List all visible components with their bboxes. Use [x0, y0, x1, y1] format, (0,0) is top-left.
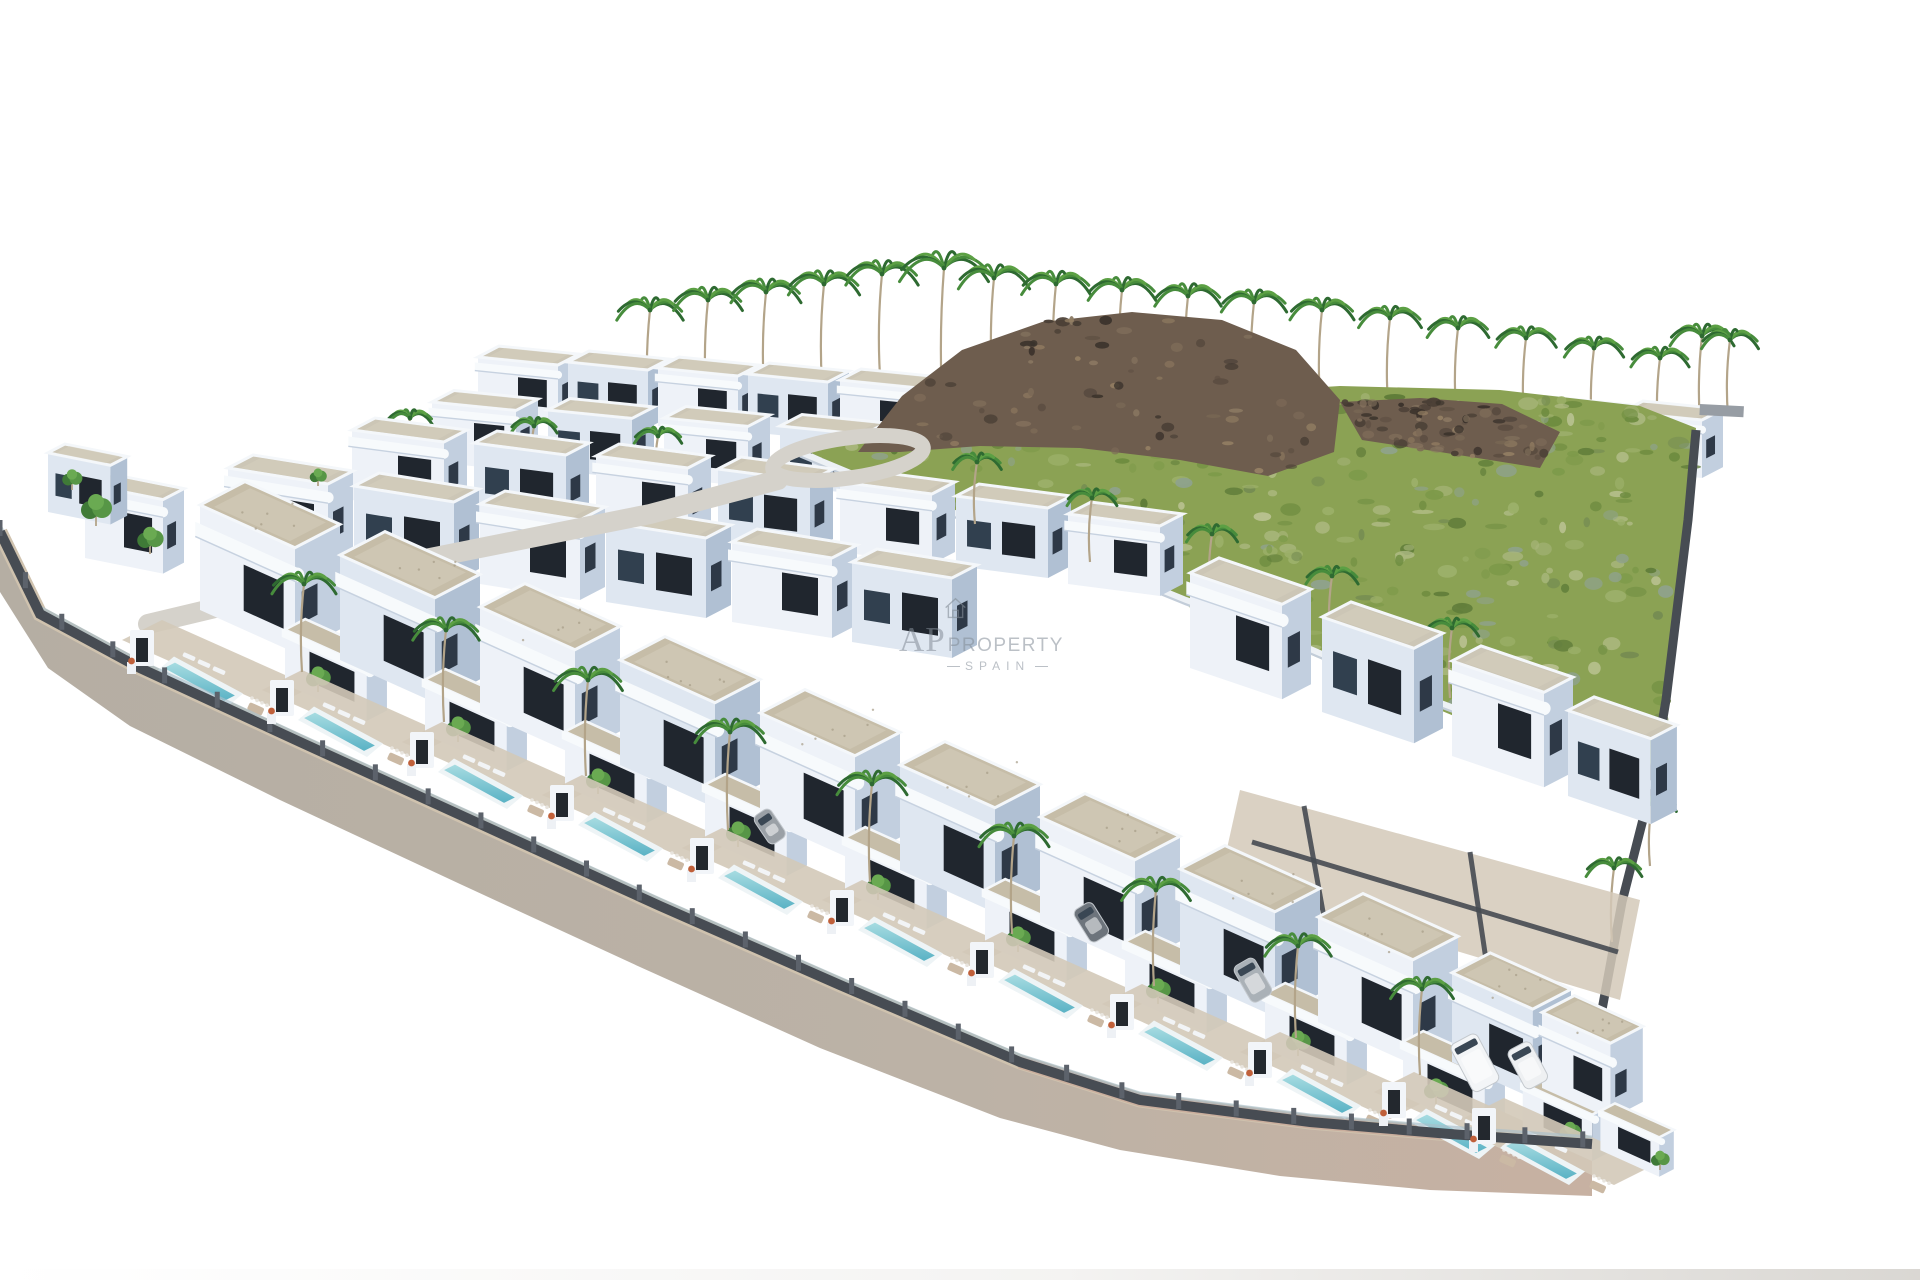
roof-gravel-dot [1106, 827, 1108, 829]
roof-gravel-dot [1491, 997, 1493, 999]
villa-window [656, 552, 692, 595]
planter-flowers [548, 813, 555, 820]
roof-gravel-dot [1515, 974, 1517, 976]
dining-chair [825, 911, 829, 915]
roof-gravel-dot [1241, 880, 1243, 882]
dining-chair [960, 961, 964, 965]
balcony-band-end [322, 492, 333, 503]
palm-crown-center [1012, 834, 1017, 839]
roof-gravel-dot [986, 772, 988, 774]
dining-chair [1592, 1174, 1596, 1178]
entrance-portico [967, 942, 994, 986]
roof-gravel-dot [454, 561, 456, 563]
wall-pillar [1580, 1131, 1585, 1147]
balcony-band-end [439, 449, 449, 459]
palm-trunk [1727, 340, 1730, 416]
palm-crown-center [764, 290, 769, 295]
roof-gravel-dot [433, 561, 435, 563]
planter-flowers [128, 658, 135, 665]
dining-chair [955, 959, 959, 963]
planter-flowers [408, 760, 415, 767]
entrance-portico [1379, 1082, 1406, 1126]
palm-crown-center [1420, 987, 1425, 992]
roof-gravel-dot [1381, 933, 1383, 935]
wall-pillar [215, 692, 220, 708]
portico-doorway [976, 950, 988, 974]
palm-crown-center [444, 628, 449, 633]
dining-chair [1095, 1011, 1099, 1015]
roof-gravel-dot [723, 681, 725, 683]
roof-gravel-dot [843, 735, 845, 737]
wall-pillar [531, 836, 536, 852]
roof-gravel-dot [997, 795, 999, 797]
planter-flowers [968, 970, 975, 977]
roof-gravel-dot [399, 567, 401, 569]
balcony-band-end [927, 501, 937, 511]
roof-gravel-dot [453, 564, 455, 566]
roof-gravel-dot [1156, 831, 1158, 833]
roof-gravel-dot [1121, 828, 1123, 830]
tree-foliage [1655, 1151, 1665, 1161]
roof-gravel-dot [1247, 893, 1249, 895]
wall-pillar [320, 740, 325, 756]
roof-gravel-dot [1118, 840, 1120, 842]
dining-chair [390, 746, 394, 750]
corner-pier [1699, 404, 1744, 417]
villa-wing-parapet-end [1591, 1115, 1599, 1123]
roof-gravel-dot [1576, 1032, 1578, 1034]
roof-gravel-dot [255, 527, 257, 529]
wall-pillar [1234, 1100, 1239, 1116]
roof-gravel-dot [866, 724, 868, 726]
roof-gravel-dot [1368, 917, 1370, 919]
roof-gravel-dot [1127, 814, 1129, 816]
palm-crown-center [942, 266, 947, 271]
balcony-band-end [554, 371, 562, 379]
roof-gravel-dot [562, 626, 564, 628]
villa-side-window [1288, 631, 1300, 668]
dining-chair [965, 963, 969, 967]
roof-gravel-dot [438, 577, 440, 579]
dining-chair [395, 749, 399, 753]
wall-pillar [23, 572, 28, 588]
entrance-portico [407, 732, 434, 776]
palm-crown-center [1054, 282, 1059, 287]
dining-chair [680, 856, 684, 860]
portico-doorway [1478, 1116, 1490, 1140]
render-canvas: AP PROPERTY SPAIN [0, 0, 1920, 1280]
wall-pillar [373, 764, 378, 780]
villa-window [886, 508, 919, 545]
balcony-band-end [826, 566, 837, 577]
palm-tree [846, 261, 918, 376]
dining-chair [1100, 1013, 1104, 1017]
roof-gravel-dot [557, 629, 559, 631]
planter-flowers [1108, 1022, 1115, 1029]
palm-frond [900, 259, 944, 281]
dining-chair [530, 798, 534, 802]
roof-gravel-dot [689, 684, 691, 686]
tree-foliage [88, 494, 104, 510]
wall-pillar [584, 861, 589, 877]
villa-window [618, 550, 644, 585]
roof-gravel-dot [522, 639, 524, 641]
palm-crown-center [1728, 338, 1733, 343]
palm-crown-center [1388, 316, 1393, 321]
dining-chair [820, 909, 824, 913]
villa-side-window [1420, 675, 1432, 712]
palm-crown-center [648, 308, 653, 313]
portico-doorway [556, 793, 568, 817]
entrance-portico [547, 785, 574, 829]
entrance-portico [827, 890, 854, 934]
palm-crown-center [656, 434, 661, 439]
dining-chair [950, 956, 954, 960]
villa [852, 549, 977, 658]
dining-chair [545, 805, 549, 809]
roof-gravel-dot [1421, 930, 1423, 932]
dining-chair [1373, 1111, 1377, 1115]
palm-crown-center [1120, 288, 1125, 293]
dining-chair [1607, 1181, 1611, 1185]
portico-doorway [1254, 1050, 1266, 1074]
dining-chair [1230, 1060, 1234, 1064]
villa-window [864, 590, 890, 625]
wall-pillar [956, 1024, 961, 1040]
palm-crown-center [880, 272, 885, 277]
dining-chair [1602, 1179, 1606, 1183]
roof-gravel-dot [1232, 897, 1234, 899]
dining-chair [815, 907, 819, 911]
dining-chair [675, 854, 679, 858]
roof-gravel-dot [946, 786, 948, 788]
roof-gravel-dot [814, 737, 816, 739]
wall-pillar [162, 667, 167, 683]
roof-gravel-dot [719, 678, 721, 680]
palm-crown-center [822, 282, 827, 287]
roof-gravel-dot [1498, 985, 1500, 987]
villa-side-window [1656, 763, 1667, 796]
tree-foliage [732, 821, 745, 834]
palm-crown-center [1296, 944, 1301, 949]
roof-gravel-dot [293, 525, 295, 527]
entrance-portico [687, 838, 714, 882]
villa [728, 529, 857, 638]
dining-chair [1597, 1177, 1601, 1181]
balcony-band-end [734, 382, 742, 390]
villa-window [1114, 540, 1147, 577]
wall-pillar [478, 812, 483, 828]
villa-side-window [1550, 719, 1562, 756]
portico-doorway [416, 740, 428, 764]
dining-chair [685, 858, 689, 862]
balcony-band-end [1155, 533, 1165, 543]
palm-crown-center [1658, 356, 1663, 361]
wall-pillar [1349, 1114, 1354, 1130]
roof-gravel-dot [1602, 1029, 1604, 1031]
palm-tree [1702, 330, 1759, 416]
palm-crown-center [1090, 496, 1095, 501]
wall-pillar [849, 978, 854, 994]
wall-pillar [1407, 1119, 1412, 1135]
villa-side-window [167, 521, 176, 549]
dining-chair [670, 851, 674, 855]
roof-gravel-dot [1292, 873, 1294, 875]
dining-chair [1368, 1108, 1372, 1112]
palm-crown-center [870, 782, 875, 787]
roof-gravel-dot [1388, 951, 1390, 953]
roof-gravel-dot [241, 511, 243, 513]
roof-gravel-dot [1524, 988, 1526, 990]
wall-pillar [59, 614, 64, 630]
palm-crown-center [706, 298, 711, 303]
palm-trunk [879, 274, 882, 376]
palm-crown-center [1592, 346, 1597, 351]
dining-chair [1240, 1065, 1244, 1069]
dining-chair [540, 803, 544, 807]
wall-pillar [690, 908, 695, 924]
villa-window [764, 495, 797, 532]
palm-crown-center [1154, 888, 1159, 893]
portico-doorway [136, 638, 148, 662]
dining-chair [255, 699, 259, 703]
villa-side-window [957, 600, 968, 631]
wall-pillar [902, 1001, 907, 1017]
villa-window [967, 520, 991, 550]
roof-gravel-dot [589, 628, 591, 630]
portico-doorway [696, 846, 708, 870]
palm-crown-center [1186, 294, 1191, 299]
portico-doorway [1116, 1002, 1128, 1026]
wall-pillar [1465, 1123, 1470, 1139]
dining-chair [535, 801, 539, 805]
wall-pillar [426, 788, 431, 804]
roof-gravel-dot [831, 728, 833, 730]
row-left [48, 444, 184, 574]
palm-crown-center [1330, 574, 1335, 579]
dining-chair [260, 701, 264, 705]
palm-crown-center [728, 730, 733, 735]
roof-gravel-dot [680, 680, 682, 682]
roof-gravel-dot [266, 513, 268, 515]
wall-pillar [110, 641, 115, 657]
palm-crown-center [1612, 866, 1617, 871]
roof-gravel-dot [1592, 1030, 1594, 1032]
palm-crown-center [1320, 308, 1325, 313]
portico-doorway [276, 688, 288, 712]
roof-gravel-dot [1016, 761, 1018, 763]
dining-chair [1105, 1015, 1109, 1019]
villa-side-window [711, 560, 722, 591]
entrance-portico [1245, 1042, 1272, 1086]
planter-flowers [1470, 1136, 1477, 1143]
wall-pillar [1291, 1108, 1296, 1124]
villa-side-window [585, 542, 596, 573]
dining-chair [1235, 1063, 1239, 1067]
balcony-band-end [683, 475, 693, 485]
bottom-road-band [0, 1269, 1920, 1280]
roof-gravel-dot [667, 676, 669, 678]
dining-chair [250, 696, 254, 700]
roof-gravel-dot [1271, 893, 1273, 895]
roof-gravel-dot [1621, 1021, 1623, 1023]
roof-gravel-dot [665, 661, 667, 663]
palm-crown-center [302, 582, 307, 587]
roof-gravel-dot [579, 609, 581, 611]
planter-flowers [688, 866, 695, 873]
tree-foliage [143, 527, 157, 541]
villa-side-window [114, 482, 121, 505]
tree-foliage [314, 468, 323, 477]
palm-crown-center [975, 460, 980, 465]
villa-window [1002, 522, 1035, 559]
villa-window [902, 592, 938, 635]
wall-pillar [1119, 1082, 1124, 1098]
roof-gravel-dot [968, 795, 970, 797]
roof-gravel-dot [1508, 969, 1510, 971]
roof-gravel-dot [1539, 979, 1541, 981]
balcony-band-end [158, 507, 168, 517]
portico-doorway [1388, 1090, 1400, 1114]
roof-gravel-dot [578, 622, 580, 624]
wall-pillar [1064, 1065, 1069, 1081]
palm-crown-center [408, 416, 413, 421]
roof-gravel-dot [1602, 1018, 1604, 1020]
villa-wing-parapet-end [1658, 1138, 1665, 1145]
dining-chair [265, 703, 269, 707]
palm-crown-center [1450, 626, 1455, 631]
tree-foliage [67, 469, 77, 479]
wall-pillar [0, 520, 3, 536]
planter-flowers [268, 708, 275, 715]
palm-crown-center [532, 424, 537, 429]
roof-gravel-dot [260, 523, 262, 525]
tree-foliage [592, 768, 605, 781]
palm-crown-center [1700, 334, 1705, 339]
planter-flowers [1380, 1110, 1387, 1117]
roof-gravel-dot [1364, 933, 1366, 935]
villa [1064, 502, 1183, 596]
palm-crown-center [1252, 300, 1257, 305]
wall-pillar [1522, 1127, 1527, 1143]
villa-side-window [837, 580, 848, 611]
roof-gravel-dot [1367, 934, 1369, 936]
roof-gravel-dot [1134, 830, 1136, 832]
palm-crown-center [586, 678, 591, 683]
roof-gravel-dot [291, 502, 293, 504]
palm-crown-center [1524, 336, 1529, 341]
roof-gravel-dot [801, 743, 803, 745]
roof-gravel-dot [1608, 1022, 1610, 1024]
aerial-3d-render [0, 0, 1920, 1280]
entrance-portico [1107, 994, 1134, 1038]
wall-pillar [796, 955, 801, 971]
palm-crown-center [1210, 532, 1215, 537]
planter-flowers [1246, 1070, 1253, 1077]
dining-chair [810, 904, 814, 908]
entrance-portico [267, 680, 294, 724]
roof-gravel-dot [1291, 901, 1293, 903]
wall-pillar [637, 885, 642, 901]
dining-chair [405, 753, 409, 757]
dining-chair [1090, 1008, 1094, 1012]
balcony-band-end [744, 432, 752, 440]
roof-gravel-dot [965, 786, 967, 788]
roof-gravel-dot [872, 709, 874, 711]
villa-window [782, 572, 818, 615]
wall-pillar [1176, 1093, 1181, 1109]
wall-pillar [743, 931, 748, 947]
dining-chair [400, 751, 404, 755]
palm-crown-center [1456, 326, 1461, 331]
portico-doorway [836, 898, 848, 922]
palm-crown-center [992, 276, 997, 281]
wall-pillar [1009, 1046, 1014, 1062]
roof-gravel-dot [418, 568, 420, 570]
planter-flowers [828, 918, 835, 925]
